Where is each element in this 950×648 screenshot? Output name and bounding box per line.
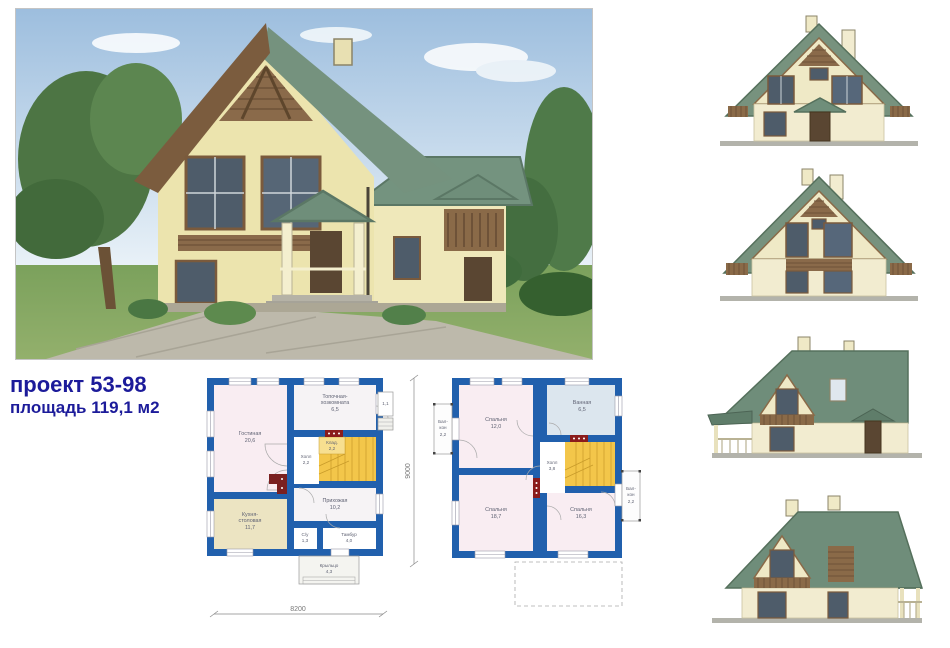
tambour-area: 4,0: [346, 538, 353, 543]
side-door: [865, 421, 881, 453]
elevation-side-right: [702, 488, 938, 646]
elevation-front-drawing: [702, 8, 938, 160]
height-dim: 9000: [405, 463, 412, 479]
wood-siding-patch: [828, 546, 854, 582]
elevation-side-left-drawing: [702, 323, 938, 481]
wood-band: [786, 259, 852, 271]
plan2-bedroom3-room: [547, 493, 615, 551]
floor-plan-1-drawing: 8200 Гостиная 20,6 Топочная- хозкомната …: [199, 366, 395, 626]
balcony-right: [890, 263, 912, 275]
spacer: [730, 516, 732, 588]
hall-label: Холл: [301, 454, 312, 459]
window-upper-right: [824, 223, 852, 257]
storage-label: Клад.: [326, 440, 338, 445]
attic-window: [810, 68, 828, 80]
window-right: [828, 592, 848, 618]
window: [770, 427, 794, 451]
window-upper-left: [786, 223, 808, 257]
project-area: площадь 119,1 м2: [10, 397, 210, 419]
plan2-vent-shaft-top: [570, 435, 588, 442]
chimney-right: [828, 496, 840, 510]
balcony-left-label-2: кон: [439, 425, 447, 430]
porch-area: 4,3: [326, 569, 333, 574]
plan2-terrace-outline: [515, 562, 622, 606]
balcony-left: [726, 263, 748, 275]
wood-band: [178, 235, 326, 251]
elevation-rear-drawing: [702, 163, 938, 315]
project-title-block: проект 53-98 площадь 119,1 м2: [10, 372, 210, 419]
side-balcony-right: [890, 106, 910, 117]
entry-area: 10,2: [330, 505, 341, 511]
window-left: [758, 592, 786, 618]
entry-door: [810, 112, 830, 141]
roof-window: [830, 379, 846, 401]
house-render-illustration: [16, 9, 592, 359]
ground-window: [764, 112, 786, 136]
ground: [712, 453, 922, 458]
vertical-dimension: 9000: [395, 368, 431, 578]
boiler-area: 6,5: [331, 407, 339, 413]
wc-area: 1,3: [302, 538, 309, 543]
plan1-kitchen-room: [214, 499, 287, 549]
ground: [712, 618, 922, 623]
ground: [720, 296, 918, 301]
kitchen-area: 11,7: [245, 525, 255, 531]
porch-left: [708, 411, 752, 453]
bedroom1-area: 12,0: [491, 424, 502, 430]
plan2-vent-shaft-mid: [533, 478, 540, 498]
plan1-side-porch: [378, 392, 393, 430]
porch-label: Крыльцо: [320, 563, 339, 568]
elevation-side-left: [702, 323, 938, 481]
vertical-dimension-drawing: 9000: [395, 368, 431, 578]
hall2-label: Холл: [547, 460, 558, 465]
plan1-width-dim: 8200: [290, 606, 306, 613]
elevation-side-right-drawing: [702, 488, 938, 646]
window-lower-right: [824, 271, 852, 293]
balcony-right-label-2: кон: [627, 492, 635, 497]
living-label: Гостиная: [239, 431, 262, 437]
veranda: [898, 588, 922, 618]
chimney: [334, 39, 352, 65]
floor-plan-1: 8200 Гостиная 20,6 Топочная- хозкомната …: [199, 366, 395, 626]
bedroom3-area: 16,3: [576, 514, 587, 520]
plan2-bedroom2-room: [459, 475, 533, 551]
window-lower-left: [786, 271, 808, 293]
bath-area: 6,5: [578, 407, 586, 413]
ground-window: [176, 261, 216, 303]
boiler-label-2: хозкомната: [321, 400, 349, 406]
side-porch-area: 1,1: [382, 401, 389, 406]
bath-label: Ванная: [573, 400, 592, 406]
chimney-left: [802, 169, 813, 185]
ground: [720, 141, 918, 146]
balcony-right-area: 2,2: [628, 499, 635, 504]
wc-label: С/у: [302, 532, 310, 537]
tambour-label: Тамбур: [341, 532, 357, 537]
living-area: 20,6: [245, 438, 256, 444]
elevation-front: [702, 8, 938, 160]
balcony-left-area: 2,2: [440, 432, 447, 437]
house-render-photo: [15, 8, 593, 360]
storage-area: 2,2: [329, 446, 336, 451]
entry-label: Прихожая: [323, 498, 348, 504]
hall2-area: 3,8: [549, 466, 556, 471]
floor-plan-2: Спальня 12,0 Ванная 6,5 Холл 3,8 Спальня…: [430, 366, 645, 618]
elevation-rear: [702, 163, 938, 315]
balcony-left-label-1: Бал-: [438, 419, 448, 424]
side-balcony-left: [728, 106, 748, 117]
bedroom2-label: Спальня: [485, 507, 507, 513]
plan1-vent-shaft: [325, 430, 343, 437]
bedroom3-label: Спальня: [570, 507, 592, 513]
bedroom2-area: 18,7: [491, 514, 502, 520]
project-title: проект 53-98: [10, 372, 210, 397]
floor-plan-2-drawing: Спальня 12,0 Ванная 6,5 Холл 3,8 Спальня…: [430, 366, 645, 618]
bedroom1-label: Спальня: [485, 417, 507, 423]
balcony-right-label-1: Бал-: [626, 486, 636, 491]
kitchen-label-2: столовая: [239, 518, 262, 524]
hall-area: 2,2: [303, 460, 310, 465]
